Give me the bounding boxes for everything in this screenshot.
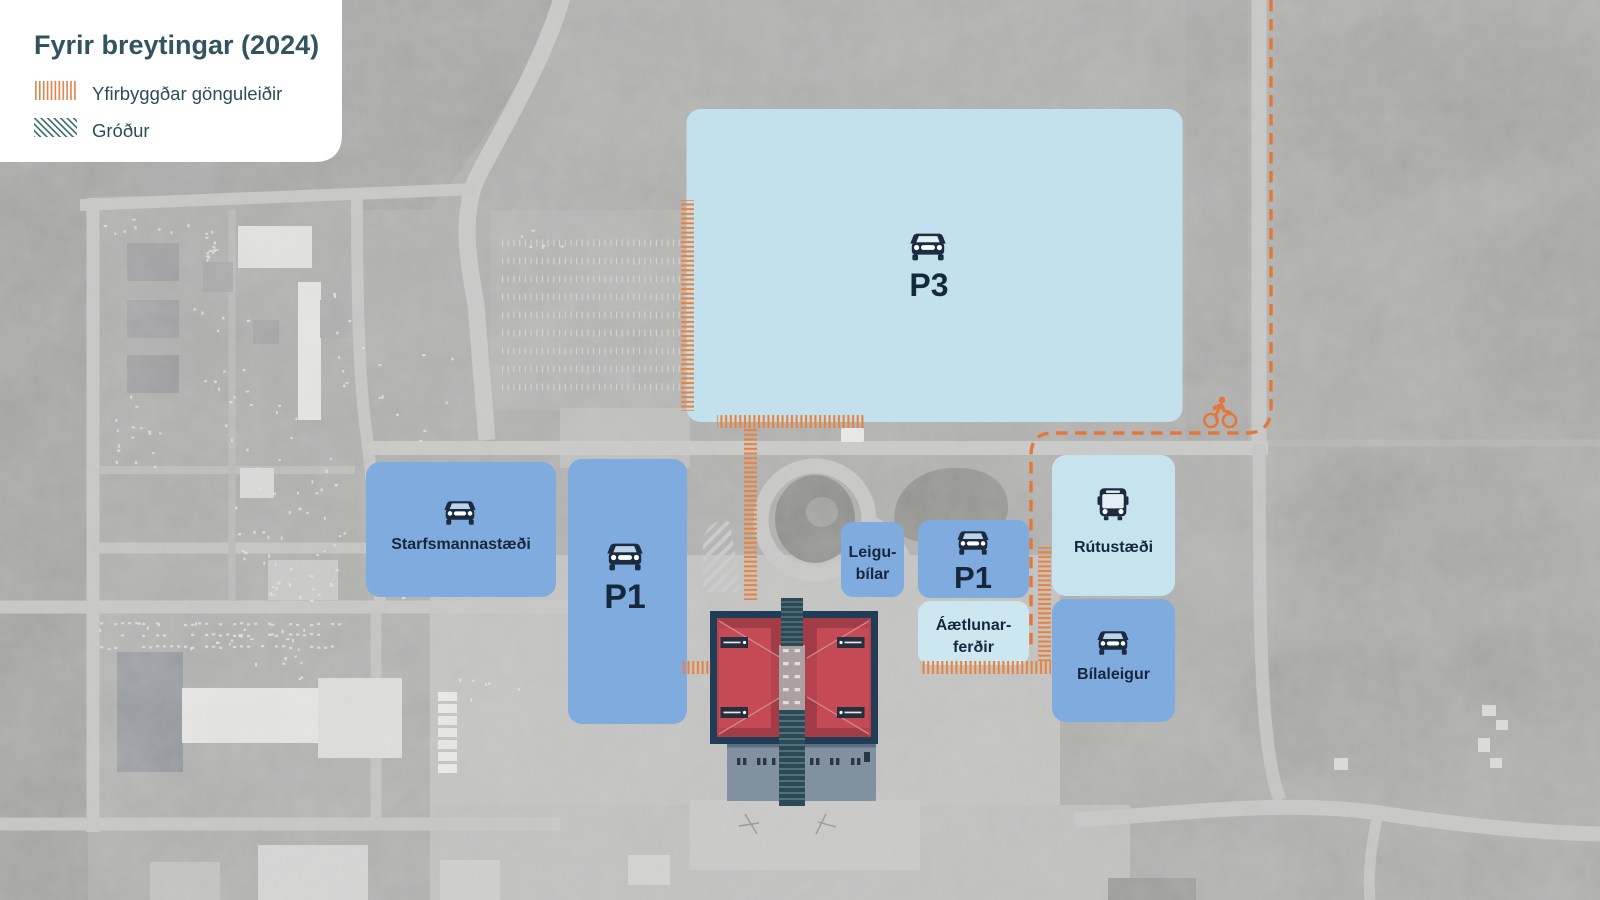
svg-text:Gróður: Gróður bbox=[92, 120, 150, 141]
svg-text:Áætlunar-: Áætlunar- bbox=[936, 615, 1012, 634]
svg-text:bílar: bílar bbox=[856, 566, 890, 583]
svg-text:Bílaleigur: Bílaleigur bbox=[1077, 666, 1150, 683]
svg-text:P3: P3 bbox=[909, 267, 948, 303]
svg-text:P1: P1 bbox=[954, 560, 992, 595]
svg-text:ferðir: ferðir bbox=[953, 639, 994, 656]
svg-text:Leigu-: Leigu- bbox=[849, 544, 897, 561]
svg-text:Rútustæði: Rútustæði bbox=[1074, 539, 1153, 556]
svg-text:Starfsmannastæði: Starfsmannastæði bbox=[391, 536, 531, 553]
svg-text:P1: P1 bbox=[604, 578, 646, 616]
svg-text:Fyrir breytingar (2024): Fyrir breytingar (2024) bbox=[34, 30, 319, 60]
svg-text:Yfirbyggðar gönguleiðir: Yfirbyggðar gönguleiðir bbox=[92, 83, 282, 104]
